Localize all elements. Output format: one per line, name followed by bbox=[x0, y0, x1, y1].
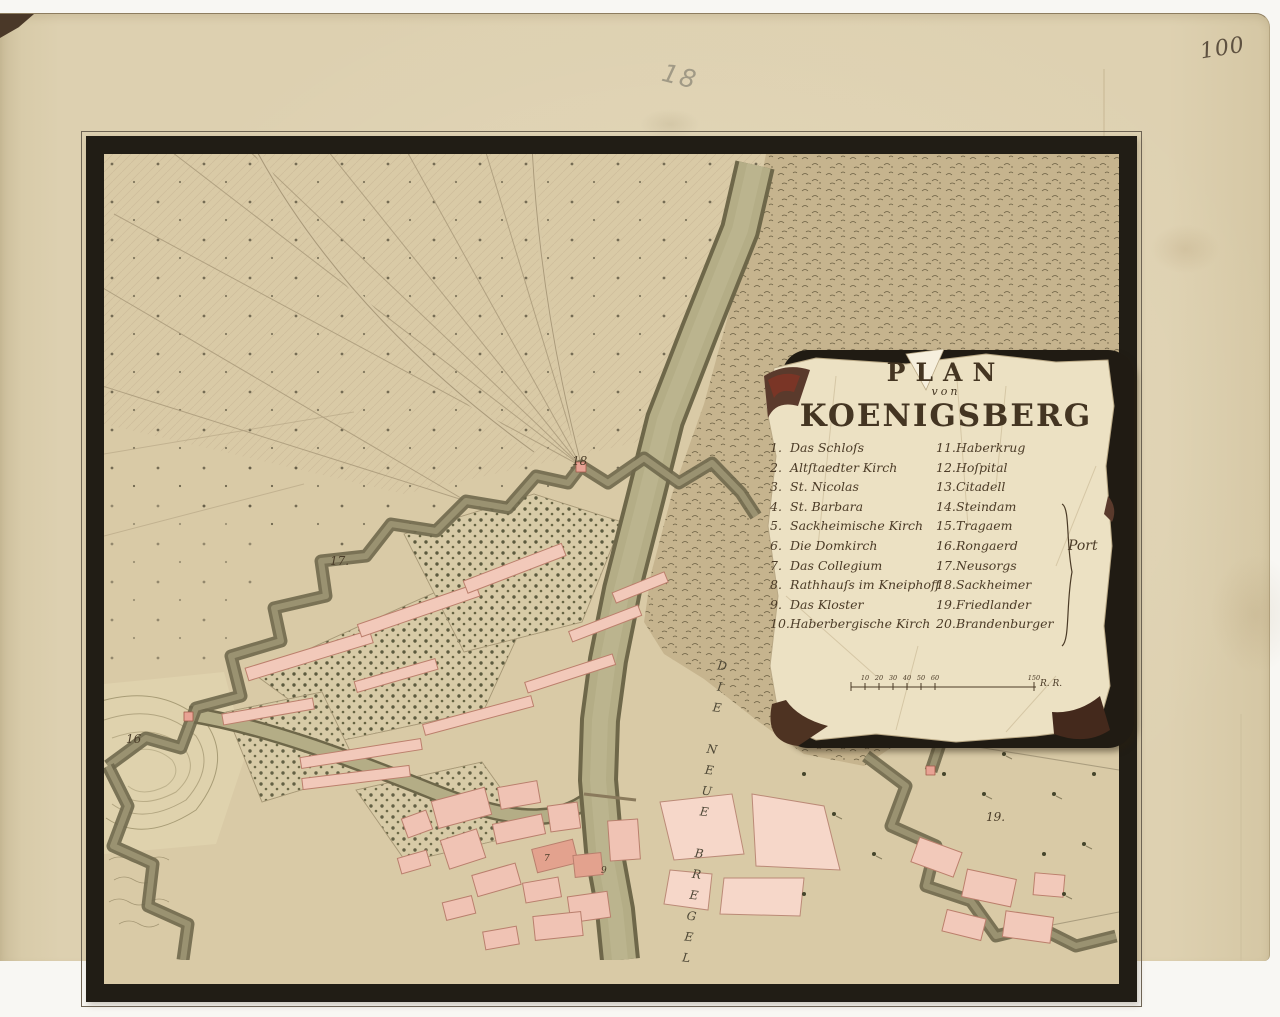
scale-tick: 20 bbox=[872, 674, 886, 682]
scale-tick: 60 bbox=[928, 674, 942, 682]
legend-num: 20. bbox=[936, 616, 956, 631]
legend-num: 2. bbox=[770, 460, 790, 475]
legend-num: 17. bbox=[936, 558, 956, 573]
legend-num: 6. bbox=[770, 538, 790, 553]
legend-item: 20.Brandenburger bbox=[936, 616, 1064, 636]
legend-item: 10.Haberbergische Kirch bbox=[770, 616, 934, 636]
legend-label: Haberkrug bbox=[956, 440, 1025, 455]
legend-label: Sackheimische Kirch bbox=[790, 518, 923, 533]
scale-unit: R. R. bbox=[1040, 679, 1062, 689]
legend-num: 12. bbox=[936, 460, 956, 475]
marker-building-7: 7 bbox=[544, 854, 550, 864]
legend-label: Das Kloster bbox=[790, 597, 864, 612]
legend-num: 19. bbox=[936, 597, 956, 612]
marker-19: 19. bbox=[986, 810, 1005, 824]
scale-tick: 10 bbox=[858, 674, 872, 682]
scale-tick: 40 bbox=[900, 674, 914, 682]
paper-stain bbox=[1150, 224, 1220, 274]
map-frame: DIE NEUE BREGEL 18 17. 16 19. 7 9 bbox=[86, 136, 1137, 1002]
legend-num: 18. bbox=[936, 577, 956, 592]
legend-item: 18.Sackheimer bbox=[936, 577, 1064, 597]
legend-item: 19.Friedlander bbox=[936, 597, 1064, 617]
legend-label: Hoſpital bbox=[956, 460, 1008, 475]
pencil-sheet-number: 18 bbox=[659, 58, 701, 95]
legend-label: Sackheimer bbox=[956, 577, 1031, 592]
legend-label: Tragaem bbox=[956, 518, 1012, 533]
legend-num: 10. bbox=[770, 616, 790, 631]
legend-item: 6.Die Domkirch bbox=[770, 538, 934, 558]
legend-label: Das Schloſs bbox=[790, 440, 864, 455]
legend-label: Steindam bbox=[956, 499, 1016, 514]
marker-18: 18 bbox=[572, 454, 587, 468]
legend-label: Neusorgs bbox=[956, 558, 1017, 573]
legend-num: 3. bbox=[770, 479, 790, 494]
legend-column-right: 11.Haberkrug 12.Hoſpital 13.Citadell 14.… bbox=[936, 440, 1064, 636]
scale-tick: 30 bbox=[886, 674, 900, 682]
legend-num: 7. bbox=[770, 558, 790, 573]
cartouche: PLAN von KOENIGSBERG 1.Das Schloſs 2.Alt… bbox=[756, 346, 1130, 754]
legend-item: 12.Hoſpital bbox=[936, 460, 1064, 480]
folio-number: 100 bbox=[1198, 33, 1246, 65]
legend-num: 8. bbox=[770, 577, 790, 592]
legend-item: 1.Das Schloſs bbox=[770, 440, 934, 460]
legend-item: 13.Citadell bbox=[936, 479, 1064, 499]
legend-num: 15. bbox=[936, 518, 956, 533]
underlying-page-edge-bottom bbox=[1240, 714, 1242, 961]
port-bracket-label: Port bbox=[1068, 538, 1098, 554]
legend-label: Friedlander bbox=[956, 597, 1031, 612]
legend-item: 14.Steindam bbox=[936, 499, 1064, 519]
legend-item: 17.Neusorgs bbox=[936, 558, 1064, 578]
legend-label: Rongaerd bbox=[956, 538, 1018, 553]
legend-item: 5.Sackheimische Kirch bbox=[770, 518, 934, 538]
legend-item: 11.Haberkrug bbox=[936, 440, 1064, 460]
legend-item: 2.Altſtaedter Kirch bbox=[770, 460, 934, 480]
legend-label: St. Barbara bbox=[790, 499, 863, 514]
legend-label: Die Domkirch bbox=[790, 538, 877, 553]
legend-num: 14. bbox=[936, 499, 956, 514]
legend-label: Das Collegium bbox=[790, 558, 882, 573]
legend-item: 16.Rongaerd bbox=[936, 538, 1064, 558]
legend-item: 3.St. Nicolas bbox=[770, 479, 934, 499]
legend-column-left: 1.Das Schloſs 2.Altſtaedter Kirch 3.St. … bbox=[770, 440, 934, 636]
legend-item: 8.Rathhauſs im Kneiphoff bbox=[770, 577, 934, 597]
title-von: von bbox=[786, 386, 1106, 398]
legend-label: Altſtaedter Kirch bbox=[790, 460, 897, 475]
marker-16: 16 bbox=[126, 732, 141, 746]
scale-tick: 50 bbox=[914, 674, 928, 682]
legend-num: 1. bbox=[770, 440, 790, 455]
legend-item: 9.Das Kloster bbox=[770, 597, 934, 617]
marker-building-9: 9 bbox=[601, 866, 607, 876]
legend-label: Haberbergische Kirch bbox=[790, 616, 930, 631]
paper-stain bbox=[1210, 554, 1280, 674]
legend-label: Rathhauſs im Kneiphoff bbox=[790, 577, 940, 592]
legend-num: 16. bbox=[936, 538, 956, 553]
legend-label: St. Nicolas bbox=[790, 479, 859, 494]
legend-num: 9. bbox=[770, 597, 790, 612]
legend-num: 11. bbox=[936, 440, 956, 455]
legend-label: Brandenburger bbox=[956, 616, 1054, 631]
legend-item: 7.Das Collegium bbox=[770, 558, 934, 578]
cartouche-title: PLAN von KOENIGSBERG bbox=[786, 360, 1106, 434]
book-binding-corner bbox=[0, 14, 34, 38]
scale-end: 150 bbox=[1027, 674, 1041, 682]
legend-num: 5. bbox=[770, 518, 790, 533]
paper-stain bbox=[640, 109, 700, 139]
legend-num: 4. bbox=[770, 499, 790, 514]
legend-item: 15.Tragaem bbox=[936, 518, 1064, 538]
legend-label: Citadell bbox=[956, 479, 1005, 494]
legend-item: 4.St. Barbara bbox=[770, 499, 934, 519]
title-plan: PLAN bbox=[786, 360, 1106, 386]
title-koenigsberg: KOENIGSBERG bbox=[786, 398, 1106, 434]
marker-17: 17. bbox=[330, 554, 349, 568]
legend-num: 13. bbox=[936, 479, 956, 494]
